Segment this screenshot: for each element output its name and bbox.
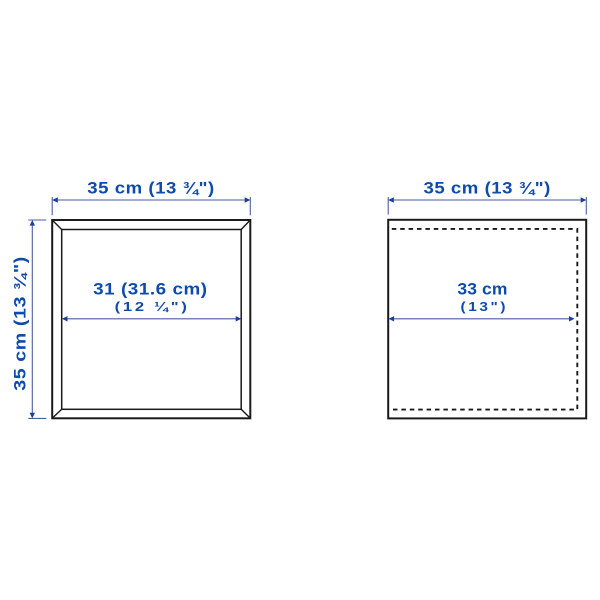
svg-text:35 cm (13 ¾"): 35 cm (13 ¾") [10,256,29,391]
svg-text:(12 ¼"): (12 ¼") [115,301,190,315]
svg-text:35 cm (13 ¾"): 35 cm (13 ¾") [87,178,214,197]
svg-text:31 (31.6 cm): 31 (31.6 cm) [93,279,207,298]
svg-text:33 cm: 33 cm [457,279,507,299]
svg-text:(13"): (13") [461,300,509,315]
svg-text:35 cm (13 ¾"): 35 cm (13 ¾") [423,178,550,197]
